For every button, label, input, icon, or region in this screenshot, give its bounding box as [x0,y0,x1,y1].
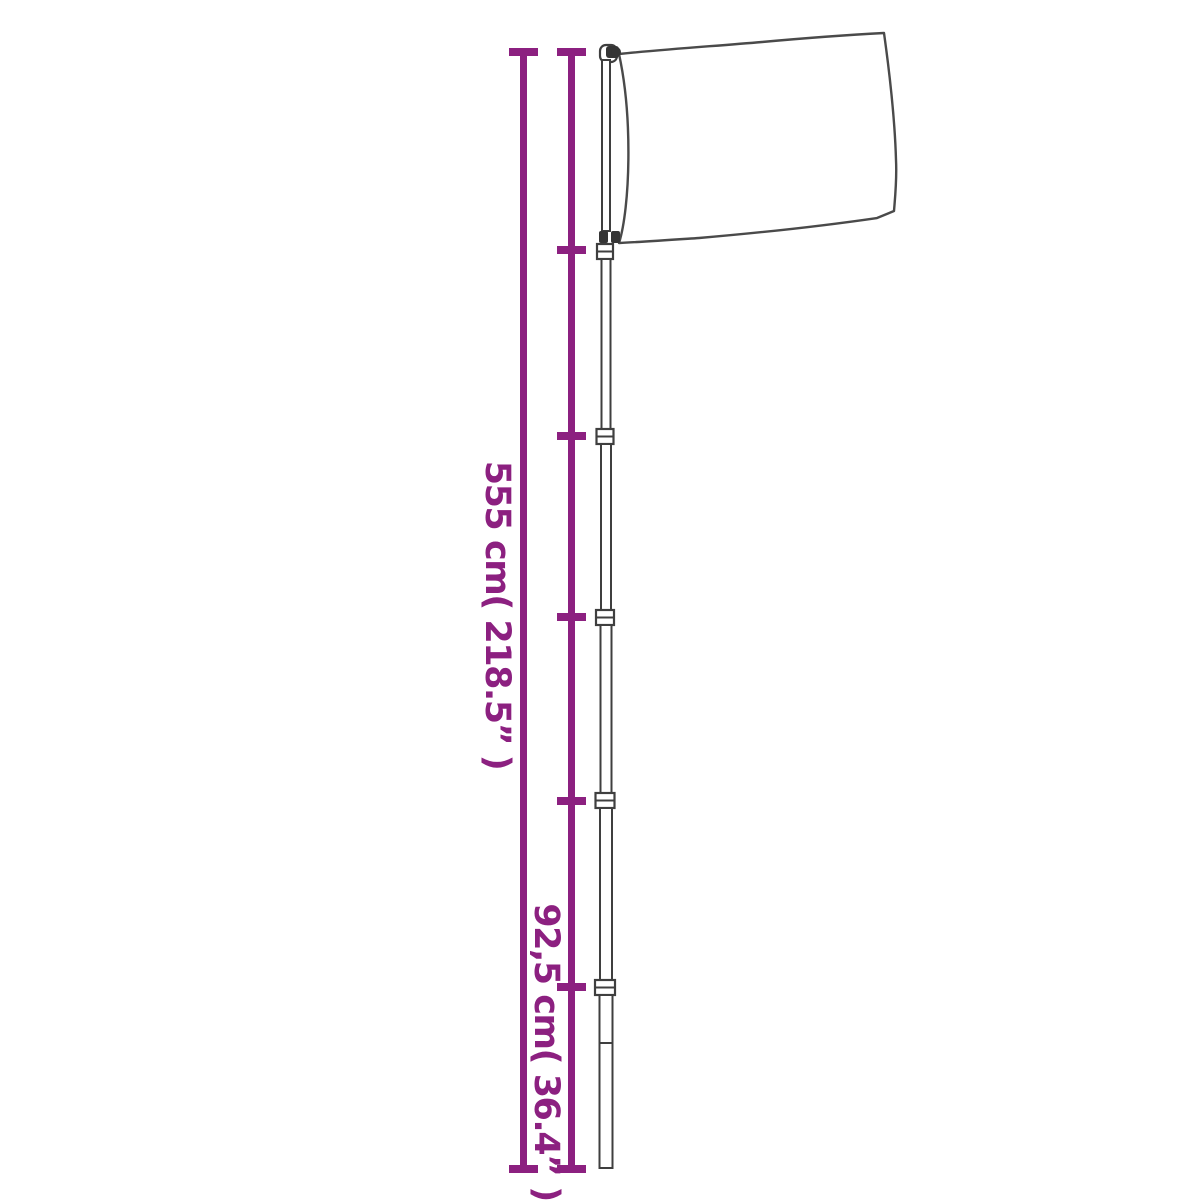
flag-outline [619,33,896,243]
pole-top-knob [611,47,621,57]
pole-segment-5 [600,808,612,980]
dimension-line-sections-rule [568,48,575,1173]
flag [619,33,896,243]
flag-clamp-bottom-icon [599,231,608,243]
flag-clamp-bottom-icon [611,231,620,243]
diagram-canvas: 555 cm( 218.5” ) 92,5 cm( 36.4” ) [0,0,1200,1200]
tick-mark [557,48,586,56]
pole [595,45,621,1168]
pole-segment-2 [602,259,611,429]
pole-segment-6 [600,995,613,1168]
pole-segment-1 [602,60,610,231]
section-height-label-text: 92,5 cm( 36.4” ) [526,903,566,1200]
pole-segment-3 [601,444,611,610]
pole-segment-4 [601,625,612,793]
tick-mark [509,48,538,56]
tick-mark [557,613,586,621]
total-height-label-text: 555 cm( 218.5” ) [477,461,517,770]
flagpole-drawing [0,0,1200,1200]
tick-mark [557,246,586,254]
tick-mark [557,797,586,805]
tick-mark [557,432,586,440]
